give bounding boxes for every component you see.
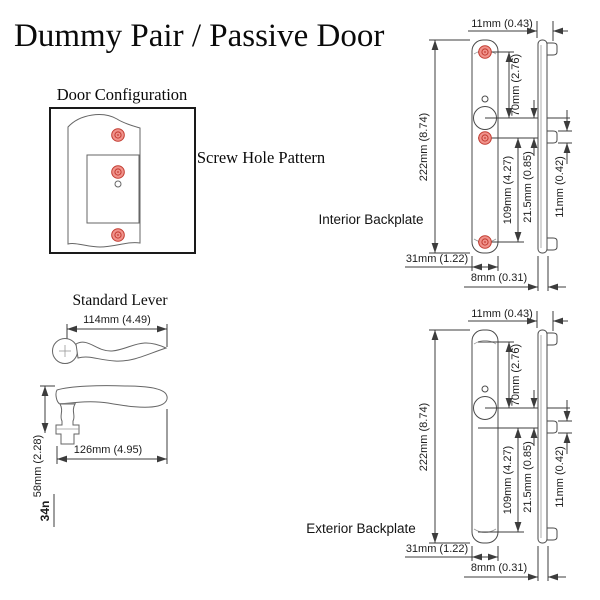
lever-handle-top [76, 342, 166, 361]
dim-lever-height: 58mm (2.28) [32, 386, 55, 497]
diagram-canvas: 11mm (0.43) 222mm (8.74) 70mm (2.76) 109… [0, 0, 600, 600]
dim-lever-side-length-label: 126mm (4.95) [74, 444, 142, 456]
dim-lever-partial: 34n [38, 494, 54, 527]
spindle-hole [115, 181, 121, 187]
page-title: Dummy Pair / Passive Door [14, 18, 384, 54]
lever-top-view [53, 339, 167, 364]
lever-spindle [56, 404, 79, 444]
door-configuration-box [50, 108, 195, 253]
interior-backplate [405, 18, 572, 291]
dim-lever-top-length-label: 114mm (4.49) [83, 314, 151, 326]
backplate-footprint [87, 155, 139, 223]
technical-drawing-page: 11mm (0.43) 222mm (8.74) 70mm (2.76) 109… [0, 0, 600, 600]
standard-lever-label: Standard Lever [72, 292, 168, 309]
interior-backplate-label: Interior Backplate [318, 212, 423, 227]
lever-side-view [56, 386, 167, 444]
exterior-backplate [405, 308, 572, 581]
dim-lever-height-label: 58mm (2.28) [32, 435, 44, 497]
door-configuration-label: Door Configuration [57, 85, 188, 104]
exterior-backplate-label: Exterior Backplate [306, 521, 416, 536]
dim-lever-partial-label: 34n [38, 501, 52, 522]
screw-hole-pattern-label: Screw Hole Pattern [197, 148, 325, 167]
